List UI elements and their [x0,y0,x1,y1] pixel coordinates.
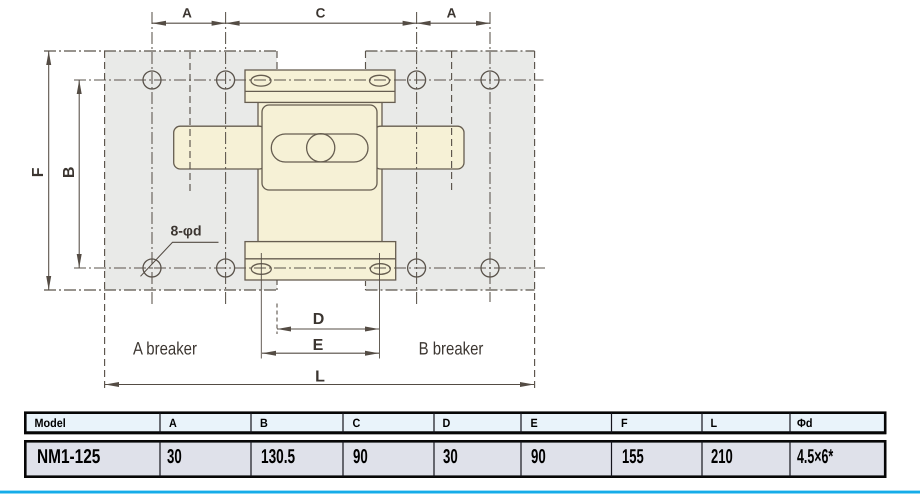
svg-text:D: D [313,311,325,328]
svg-text:Φd: Φd [797,416,812,430]
svg-text:E: E [313,337,324,354]
svg-text:B: B [61,167,78,179]
svg-text:90: 90 [531,446,546,468]
svg-text:A: A [182,6,192,21]
svg-text:30: 30 [443,446,458,468]
svg-text:D: D [443,416,451,430]
svg-text:F: F [30,167,47,177]
svg-text:C: C [316,6,326,21]
svg-text:Model: Model [35,416,66,430]
svg-text:E: E [531,416,538,430]
svg-text:L: L [711,416,718,430]
svg-text:A: A [447,6,457,21]
svg-text:L: L [315,369,325,386]
svg-text:30: 30 [167,446,182,468]
svg-text:155: 155 [622,446,644,468]
svg-text:B: B [260,416,268,430]
svg-text:F: F [621,416,628,430]
svg-text:90: 90 [353,446,368,468]
svg-text:4.5×6*: 4.5×6* [797,446,833,468]
svg-text:A breaker: A breaker [133,339,197,359]
svg-text:NM1-125: NM1-125 [37,446,100,468]
svg-text:A: A [169,416,177,430]
svg-text:8-φd: 8-φd [170,223,201,239]
svg-text:B breaker: B breaker [419,339,484,359]
svg-text:210: 210 [711,446,733,468]
svg-text:130.5: 130.5 [261,446,295,468]
svg-text:C: C [353,416,361,430]
